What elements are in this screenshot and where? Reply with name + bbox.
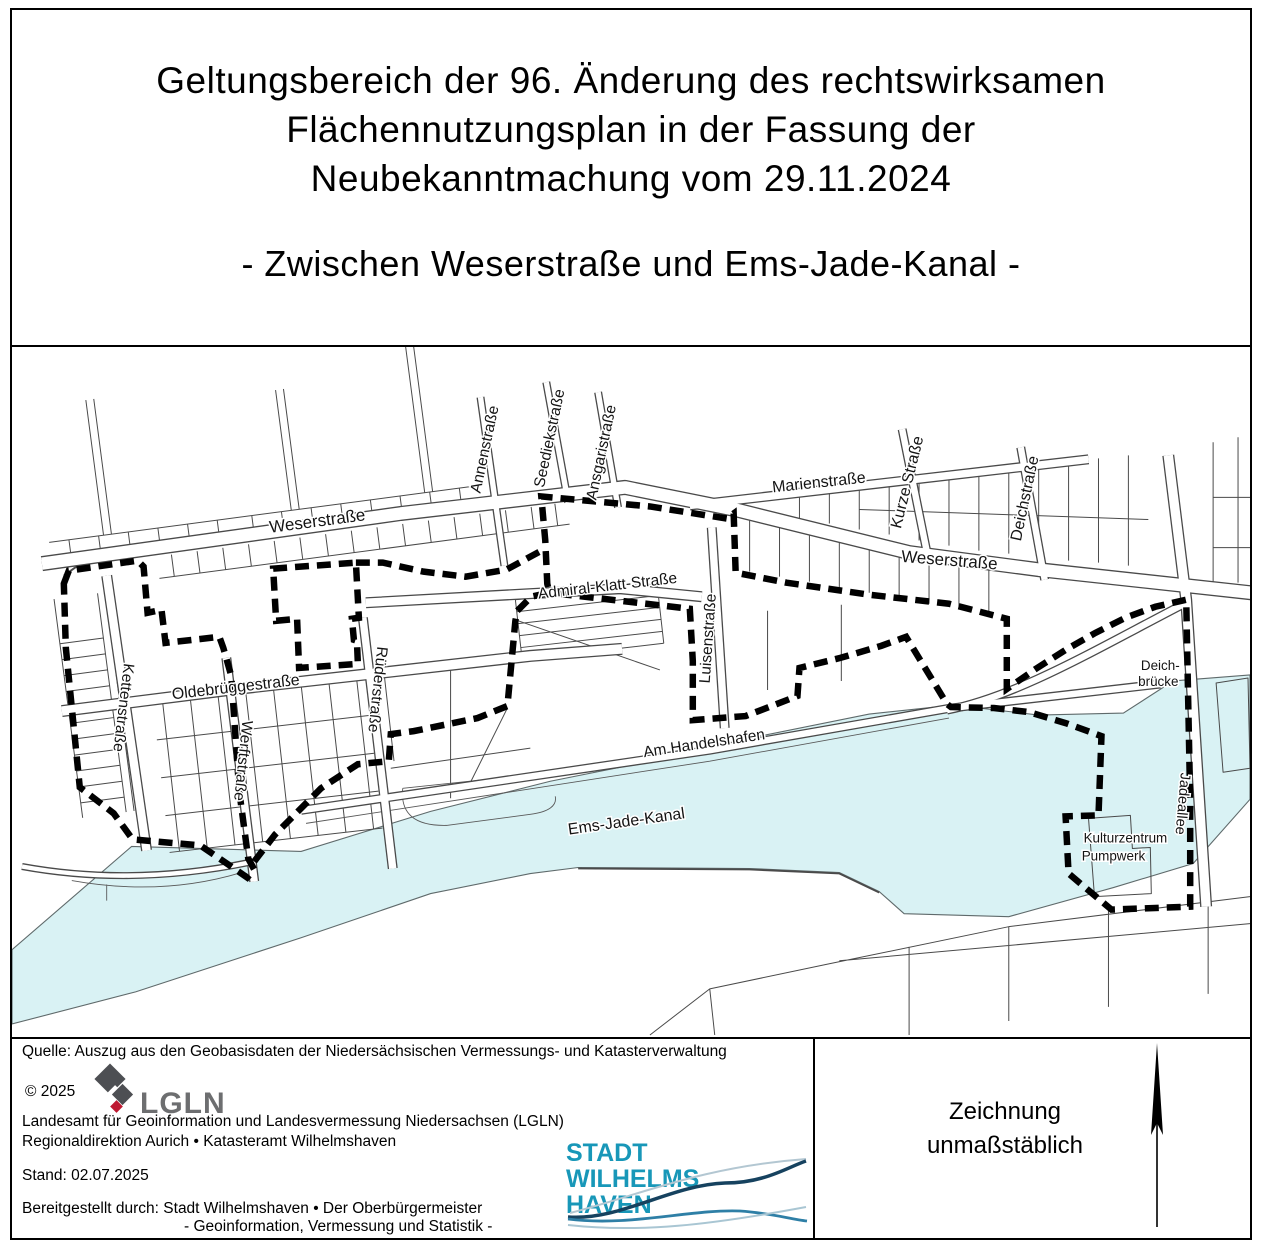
lgln-logo-glyph (94, 1063, 133, 1112)
sheet-frame: Geltungsbereich der 96. Änderung des rec… (10, 8, 1252, 1240)
title-line-1: Geltungsbereich der 96. Änderung des rec… (12, 56, 1250, 105)
footer-legend-box: Zeichnung unmaßstäblich (815, 1037, 1250, 1238)
whv-logo-line-1: STADT (566, 1139, 647, 1167)
title-block: Geltungsbereich der 96. Änderung des rec… (12, 10, 1250, 345)
title-line-3: Neubekanntmachung vom 29.11.2024 (12, 154, 1250, 203)
map-label-annenstrasse: Annenstraße (468, 404, 503, 495)
title-line-2: Flächennutzungsplan in der Fassung der (12, 105, 1250, 154)
map-block: Weserstraße Weserstraße Marienstraße Kur… (12, 345, 1250, 1039)
map-label-kulturzentrum-2: Pumpwerk (1082, 848, 1146, 863)
scale-note-line-2: unmaßstäblich (865, 1129, 1145, 1163)
scale-note-line-1: Zeichnung (865, 1095, 1145, 1129)
north-arrow-icon (1147, 1043, 1167, 1233)
map-canvas: Weserstraße Weserstraße Marienstraße Kur… (12, 347, 1250, 1037)
agency-line-1: Landesamt für Geoinformation und Landesv… (22, 1113, 564, 1131)
map-label-deichbruecke-2: brücke (1138, 674, 1178, 689)
map-label-kulturzentrum-1: Kulturzentrum (1084, 830, 1168, 845)
date-line: Stand: 02.07.2025 (22, 1167, 149, 1185)
stadt-wilhelmshaven-logo: STADT WILHELMS HAVEN (560, 1137, 810, 1232)
whv-logo-line-2: WILHELMS (566, 1165, 699, 1193)
plan-sheet: { "title": { "line1": "Geltungsbereich d… (0, 0, 1262, 1249)
copyright: © 2025 (25, 1083, 75, 1101)
footer-source-box: Quelle: Auszug aus den Geobasisdaten der… (12, 1037, 815, 1238)
source-line: Quelle: Auszug aus den Geobasisdaten der… (22, 1043, 727, 1061)
title-subtitle: - Zwischen Weserstraße und Ems-Jade-Kana… (12, 243, 1250, 285)
scale-note: Zeichnung unmaßstäblich (865, 1095, 1145, 1163)
agency-line-2: Regionaldirektion Aurich • Katasteramt W… (22, 1133, 396, 1151)
provided-line-2: - Geoinformation, Vermessung und Statist… (184, 1218, 492, 1236)
map-label-deichbruecke-1: Deich- (1141, 658, 1180, 673)
provided-line-1: Bereitgestellt durch: Stadt Wilhelmshave… (22, 1200, 482, 1218)
footer-row: Quelle: Auszug aus den Geobasisdaten der… (12, 1037, 1250, 1238)
map-label-weserstrasse-east: Weserstraße (901, 547, 999, 574)
